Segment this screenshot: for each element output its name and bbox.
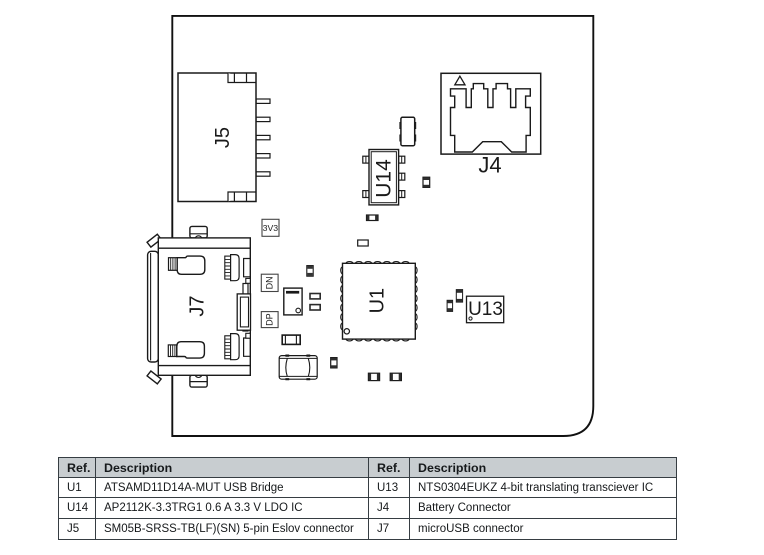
svg-text:DN: DN xyxy=(265,276,275,289)
svg-text:3V3: 3V3 xyxy=(263,223,279,233)
svg-text:J5: J5 xyxy=(212,127,234,148)
svg-text:U13: U13 xyxy=(468,299,503,320)
svg-text:U14: U14 xyxy=(372,159,395,198)
svg-text:J7: J7 xyxy=(187,295,209,316)
svg-text:J4: J4 xyxy=(478,153,501,178)
svg-text:DP: DP xyxy=(265,313,275,326)
svg-text:U1: U1 xyxy=(367,288,389,314)
